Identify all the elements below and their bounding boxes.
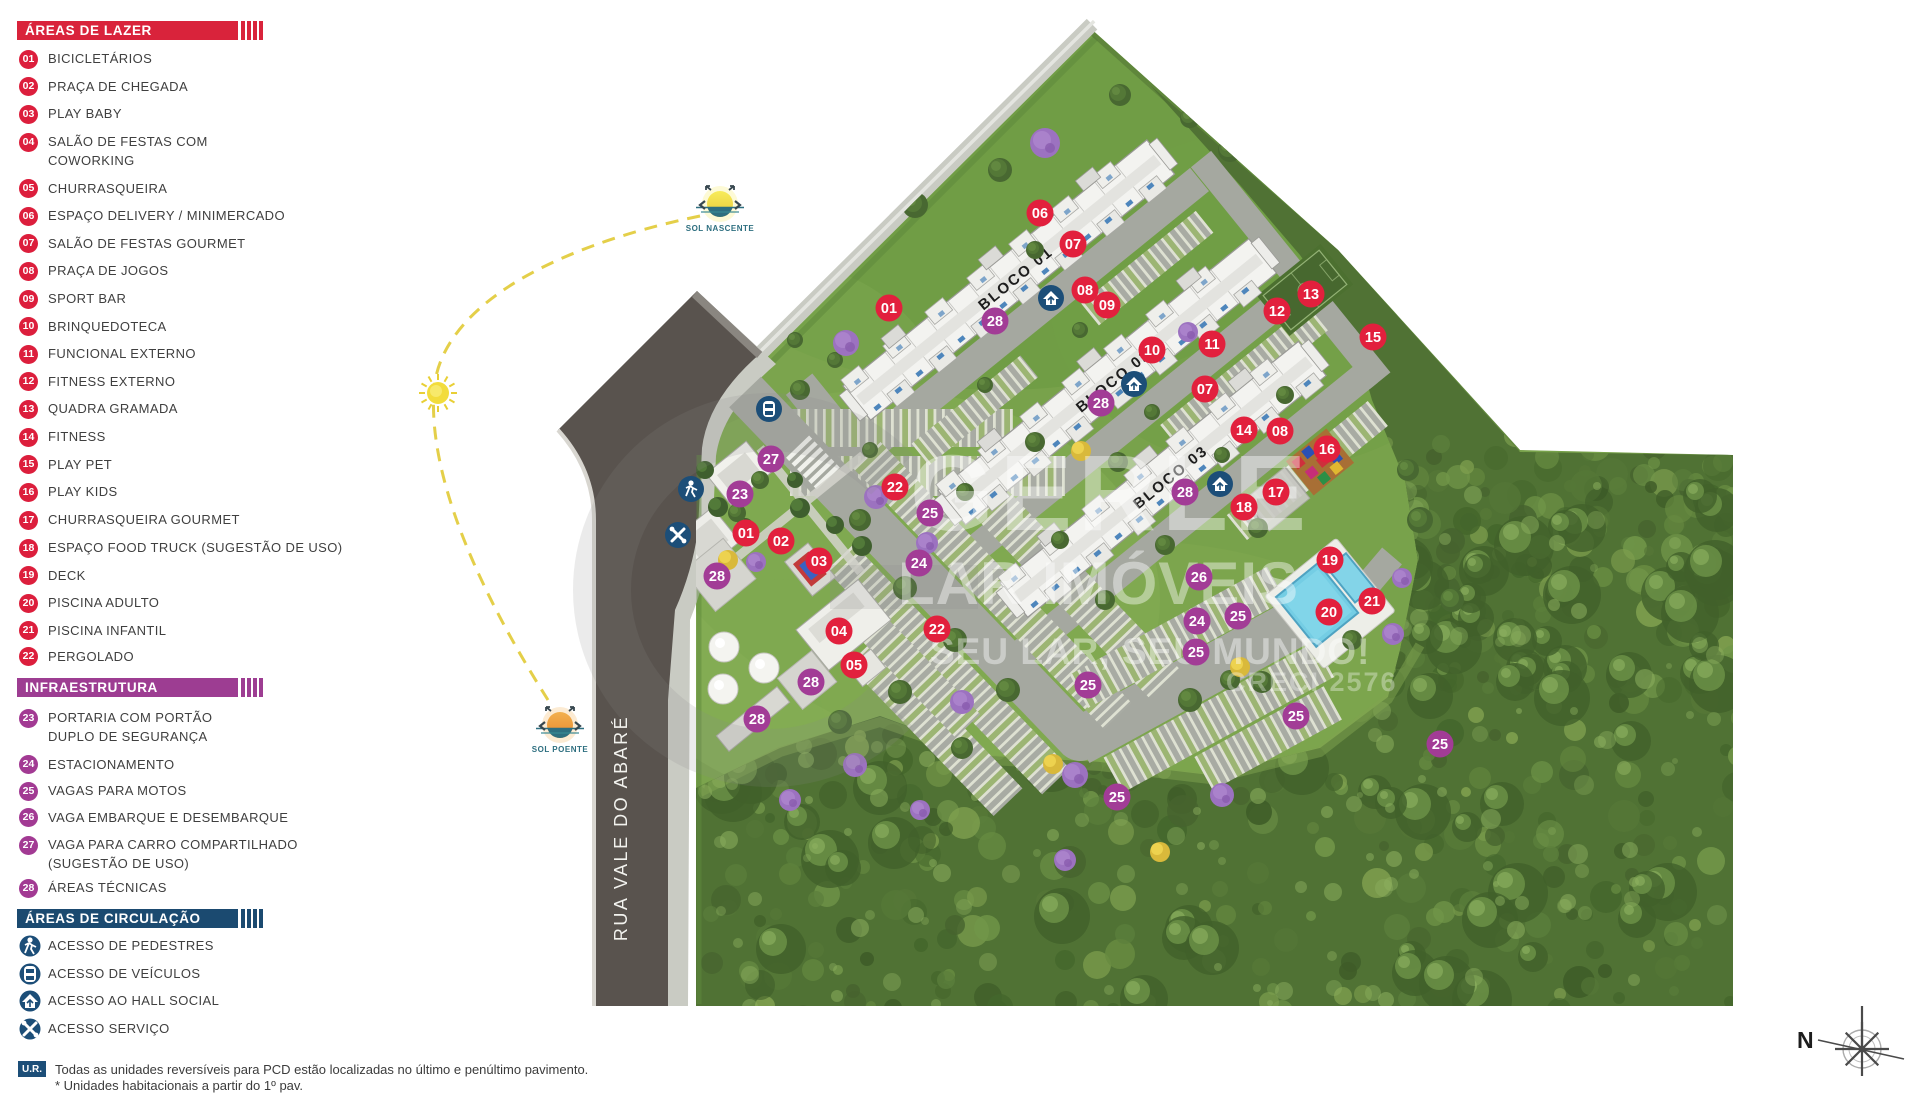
- svg-text:25: 25: [922, 506, 938, 522]
- svg-text:12: 12: [1269, 304, 1285, 320]
- svg-text:11: 11: [1204, 337, 1219, 353]
- svg-text:28: 28: [1093, 396, 1109, 412]
- svg-text:18: 18: [1236, 500, 1252, 516]
- svg-text:01: 01: [738, 526, 754, 542]
- svg-text:22: 22: [887, 480, 903, 496]
- svg-text:03: 03: [811, 554, 827, 570]
- svg-text:24: 24: [1189, 614, 1205, 630]
- svg-text:SOL POENTE: SOL POENTE: [532, 745, 589, 754]
- svg-text:24: 24: [911, 556, 927, 572]
- svg-text:14: 14: [1236, 423, 1252, 439]
- svg-text:SEU LAR, SEU MUNDO!: SEU LAR, SEU MUNDO!: [930, 631, 1370, 672]
- svg-text:02: 02: [773, 534, 789, 550]
- svg-text:17: 17: [1268, 485, 1284, 501]
- svg-text:23: 23: [732, 487, 748, 503]
- svg-text:25: 25: [1080, 678, 1096, 694]
- svg-text:04: 04: [831, 624, 847, 640]
- svg-text:15: 15: [1365, 330, 1381, 346]
- svg-text:28: 28: [709, 569, 725, 585]
- svg-text:25: 25: [1230, 609, 1246, 625]
- svg-text:28: 28: [749, 712, 765, 728]
- svg-text:09: 09: [1099, 298, 1115, 314]
- svg-text:25: 25: [1288, 709, 1304, 725]
- svg-text:13: 13: [1303, 287, 1319, 303]
- svg-text:10: 10: [1144, 343, 1160, 359]
- svg-text:CRECI 2576: CRECI 2576: [1226, 667, 1398, 697]
- svg-text:25: 25: [1188, 645, 1204, 661]
- svg-text:26: 26: [1191, 570, 1207, 586]
- svg-text:19: 19: [1322, 553, 1338, 569]
- svg-text:28: 28: [803, 675, 819, 691]
- svg-text:08: 08: [1077, 283, 1093, 299]
- svg-text:25: 25: [1432, 737, 1448, 753]
- svg-text:21: 21: [1364, 594, 1380, 610]
- svg-text:28: 28: [1177, 485, 1193, 501]
- svg-text:25: 25: [1109, 790, 1125, 806]
- svg-text:GERLE: GERLE: [910, 432, 1312, 553]
- svg-text:07: 07: [1065, 237, 1081, 253]
- svg-text:20: 20: [1321, 605, 1337, 621]
- svg-text:28: 28: [987, 314, 1003, 330]
- svg-text:16: 16: [1319, 442, 1335, 458]
- svg-text:06: 06: [1032, 206, 1048, 222]
- svg-text:27: 27: [763, 452, 779, 468]
- svg-text:22: 22: [929, 622, 945, 638]
- svg-text:N: N: [1797, 1027, 1814, 1053]
- svg-text:RUA VALE DO ABARÉ: RUA VALE DO ABARÉ: [611, 715, 631, 941]
- svg-text:05: 05: [846, 658, 862, 674]
- svg-text:01: 01: [881, 301, 897, 317]
- svg-text:08: 08: [1272, 424, 1288, 440]
- svg-text:07: 07: [1197, 382, 1213, 398]
- svg-text:SOL NASCENTE: SOL NASCENTE: [686, 224, 755, 233]
